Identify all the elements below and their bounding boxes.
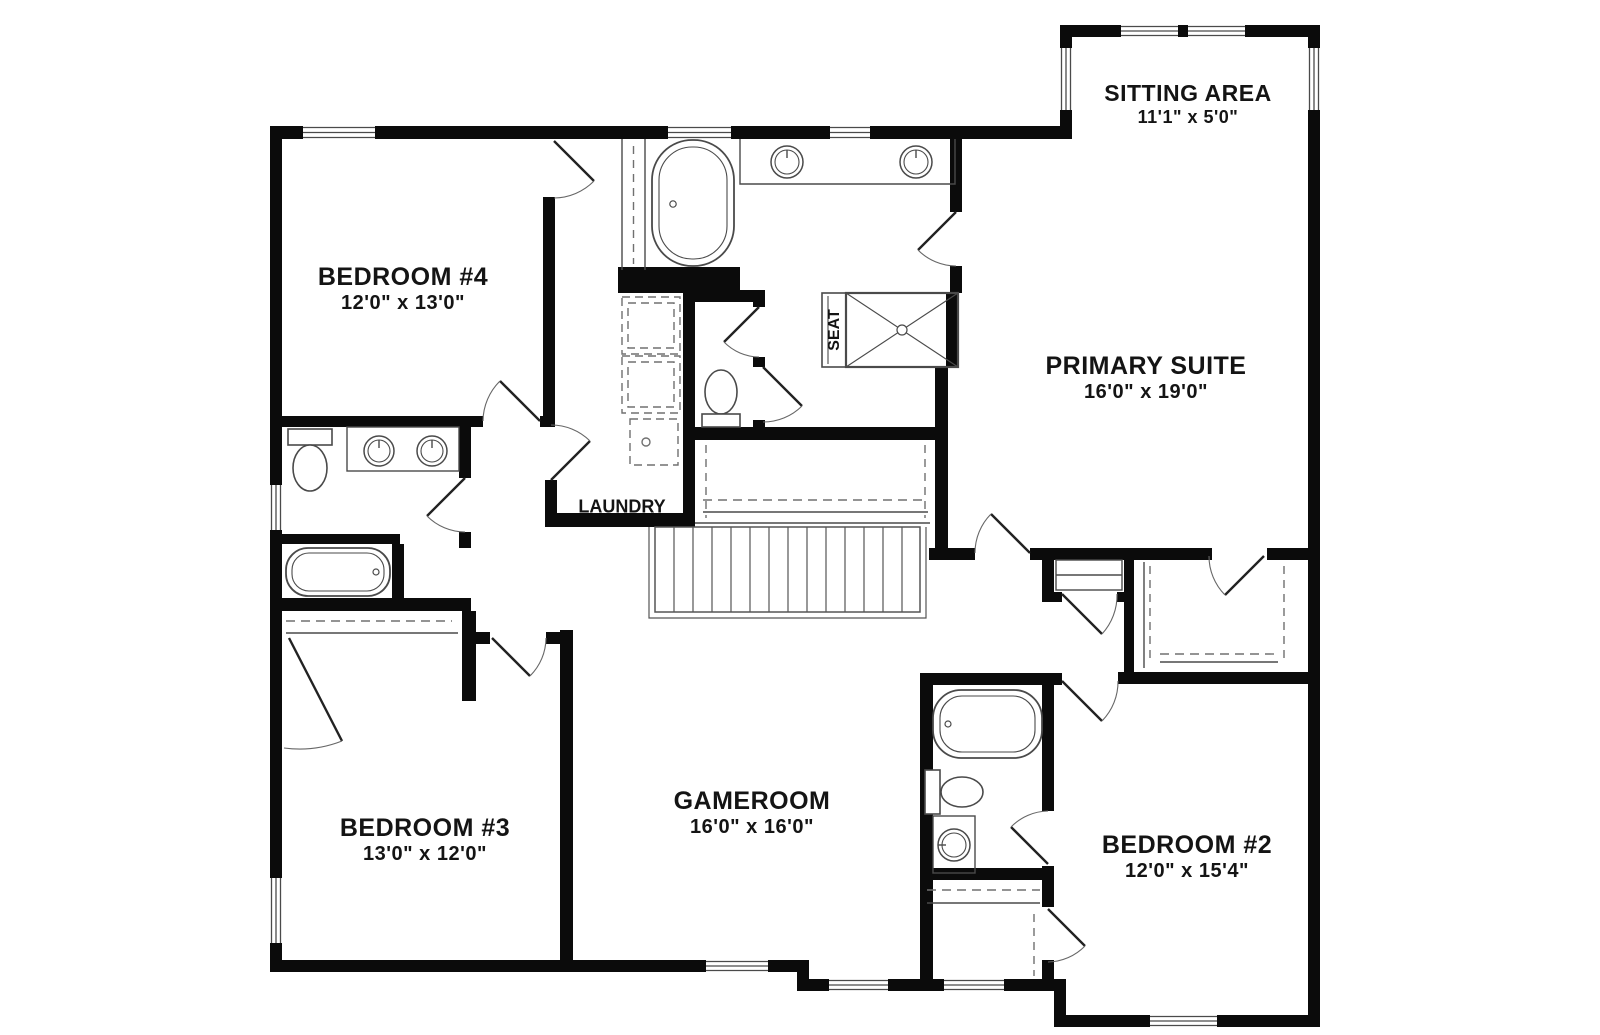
room-dims: 16'0" x 16'0" xyxy=(674,817,831,838)
floor-plan-canvas: BEDROOM #4 12'0" x 13'0" SITTING AREA 11… xyxy=(0,0,1600,1035)
bathtub-hall-bath xyxy=(286,548,390,596)
utility-box xyxy=(630,419,678,465)
toilet-water-closet xyxy=(702,370,740,427)
linen-column-hall xyxy=(622,139,645,270)
window-bedroom4-top xyxy=(303,126,375,139)
room-name: BEDROOM #3 xyxy=(340,815,510,841)
shower-seat-label: SEAT xyxy=(826,309,844,350)
linen-closet xyxy=(1056,560,1122,590)
window-lower-bottom-1 xyxy=(829,979,888,991)
toilet-bedroom2-bath xyxy=(925,770,983,814)
room-dims: 11'1" x 5'0" xyxy=(1104,108,1271,127)
room-name: PRIMARY SUITE xyxy=(1046,353,1247,379)
window-bath-top xyxy=(668,126,731,139)
room-label-bedroom2: BEDROOM #2 12'0" x 15'4" xyxy=(1102,832,1272,882)
window-bedroom2-bottom xyxy=(1150,1015,1217,1027)
staircase xyxy=(649,527,926,618)
room-label-bedroom3: BEDROOM #3 13'0" x 12'0" xyxy=(340,815,510,865)
bathtub-bedroom2 xyxy=(933,690,1042,758)
window-hallbath-left xyxy=(270,485,282,530)
closet-walkin xyxy=(1144,562,1284,668)
room-label-primary-suite: PRIMARY SUITE 16'0" x 19'0" xyxy=(1046,353,1247,403)
window-vanity-top xyxy=(830,126,870,139)
window-sitting-right xyxy=(1308,48,1320,110)
floor-plan-svg xyxy=(0,0,1600,1035)
room-dims: 12'0" x 15'4" xyxy=(1102,861,1272,882)
dryer xyxy=(622,356,680,413)
room-dims: 13'0" x 12'0" xyxy=(340,844,510,865)
vanity-hall-bath xyxy=(347,427,459,471)
toilet-hall-bath xyxy=(288,429,332,491)
washer xyxy=(622,297,680,354)
room-label-bedroom4: BEDROOM #4 12'0" x 13'0" xyxy=(318,264,488,314)
closet-bedroom3 xyxy=(286,621,458,633)
window-lower-bottom-2 xyxy=(944,979,1004,991)
room-label-sitting-area: SITTING AREA 11'1" x 5'0" xyxy=(1104,81,1271,127)
laundry-appliances xyxy=(622,297,680,465)
window-gameroom-bottom xyxy=(706,960,768,972)
room-label-gameroom: GAMEROOM 16'0" x 16'0" xyxy=(674,788,831,838)
window-sitting-top-right xyxy=(1188,25,1245,37)
room-name: GAMEROOM xyxy=(674,788,831,814)
room-name: BEDROOM #2 xyxy=(1102,832,1272,858)
window-sitting-left xyxy=(1060,48,1072,110)
vanity-primary xyxy=(740,139,955,184)
room-dims: 12'0" x 13'0" xyxy=(318,293,488,314)
closet-bedroom2-reachin xyxy=(927,890,1040,903)
room-name: LAUNDRY xyxy=(578,497,665,518)
room-name: BEDROOM #4 xyxy=(318,264,488,290)
freestanding-tub-primary xyxy=(652,140,734,266)
room-label-laundry: LAUNDRY xyxy=(578,497,665,518)
window-bedroom3-left xyxy=(270,878,282,943)
closet-primary-hall xyxy=(695,445,930,523)
window-sitting-top-left xyxy=(1121,25,1178,37)
room-name: SITTING AREA xyxy=(1104,81,1271,105)
room-dims: 16'0" x 19'0" xyxy=(1046,382,1247,403)
sink-bedroom2-bath xyxy=(933,816,975,873)
